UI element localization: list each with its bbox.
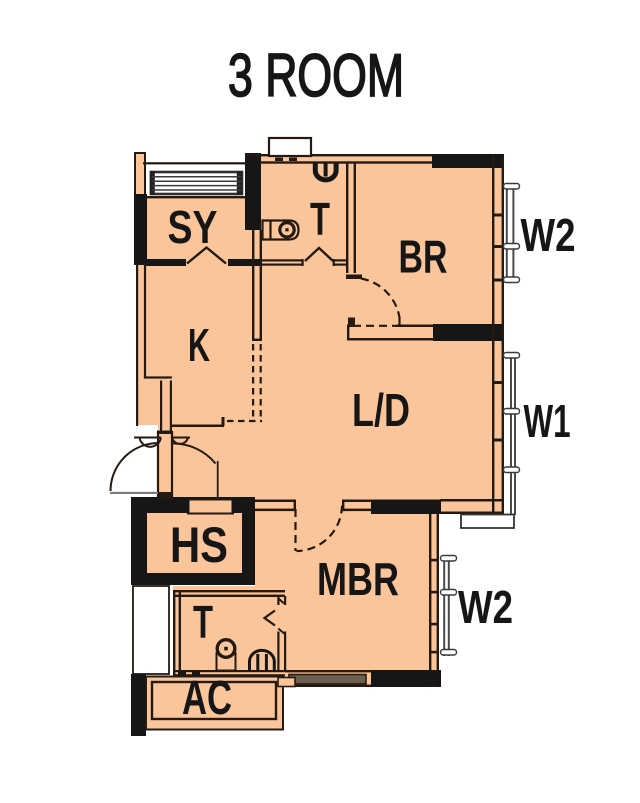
svg-text:T: T <box>193 596 213 648</box>
svg-text:BR: BR <box>399 231 448 283</box>
svg-text:AC: AC <box>182 672 232 725</box>
svg-text:W2: W2 <box>458 581 513 633</box>
svg-text:T: T <box>310 193 330 245</box>
svg-text:SY: SY <box>168 201 218 253</box>
svg-text:MBR: MBR <box>317 553 399 605</box>
svg-text:K: K <box>188 319 210 371</box>
svg-text:W1: W1 <box>524 395 571 447</box>
svg-text:HS: HS <box>170 517 228 573</box>
svg-text:L/D: L/D <box>352 384 410 436</box>
svg-text:W2: W2 <box>521 209 576 261</box>
svg-text:3 ROOM: 3 ROOM <box>228 42 404 109</box>
